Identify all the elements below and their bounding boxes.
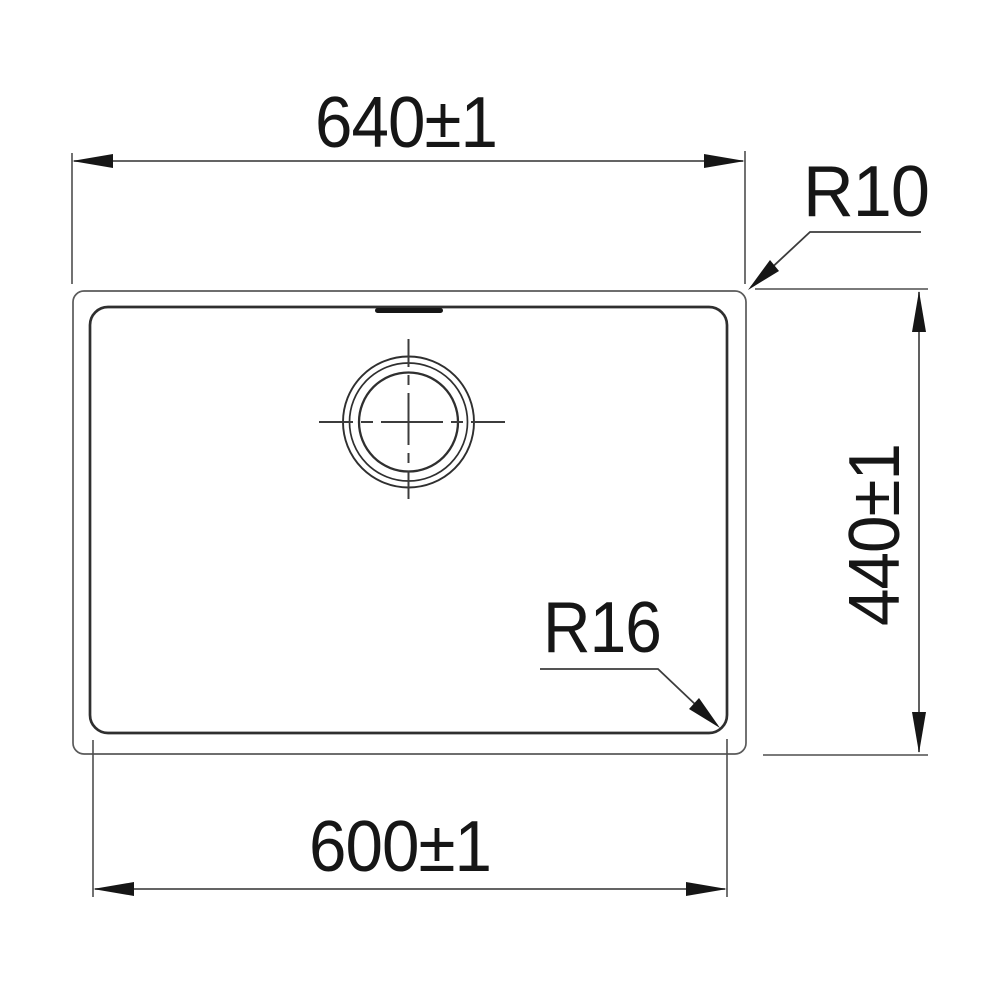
leader-line-r16	[540, 669, 717, 725]
arrowhead-left-icon	[72, 154, 113, 168]
bowl-top-slot	[375, 308, 443, 313]
arrowhead-up-icon	[912, 291, 926, 332]
arrowhead-right-icon	[686, 882, 727, 896]
sink-dimension-drawing: 640±1 440±1 600±1 R10	[0, 0, 1000, 1000]
dimension-side-height-label: 440±1	[835, 444, 915, 626]
arrowhead-down-icon	[912, 712, 926, 753]
dimension-side-height: 440±1	[755, 289, 928, 755]
leader-line-r10	[751, 232, 921, 287]
dimension-bottom-width-label: 600±1	[309, 807, 491, 887]
dimension-top-width-label: 640±1	[315, 83, 497, 163]
callout-inner-radius: R16	[540, 588, 720, 728]
arrowhead-left-icon	[93, 882, 134, 896]
drawing-canvas: 640±1 440±1 600±1 R10	[0, 0, 1000, 1000]
arrowhead-right-icon	[704, 154, 745, 168]
drain-hole	[319, 339, 505, 499]
inner-corner-radius-label: R16	[543, 588, 661, 668]
outer-corner-radius-label: R10	[803, 152, 929, 232]
dimension-bottom-width: 600±1	[93, 739, 727, 897]
dimension-top-width: 640±1	[72, 83, 745, 284]
callout-outer-radius: R10	[748, 152, 929, 290]
